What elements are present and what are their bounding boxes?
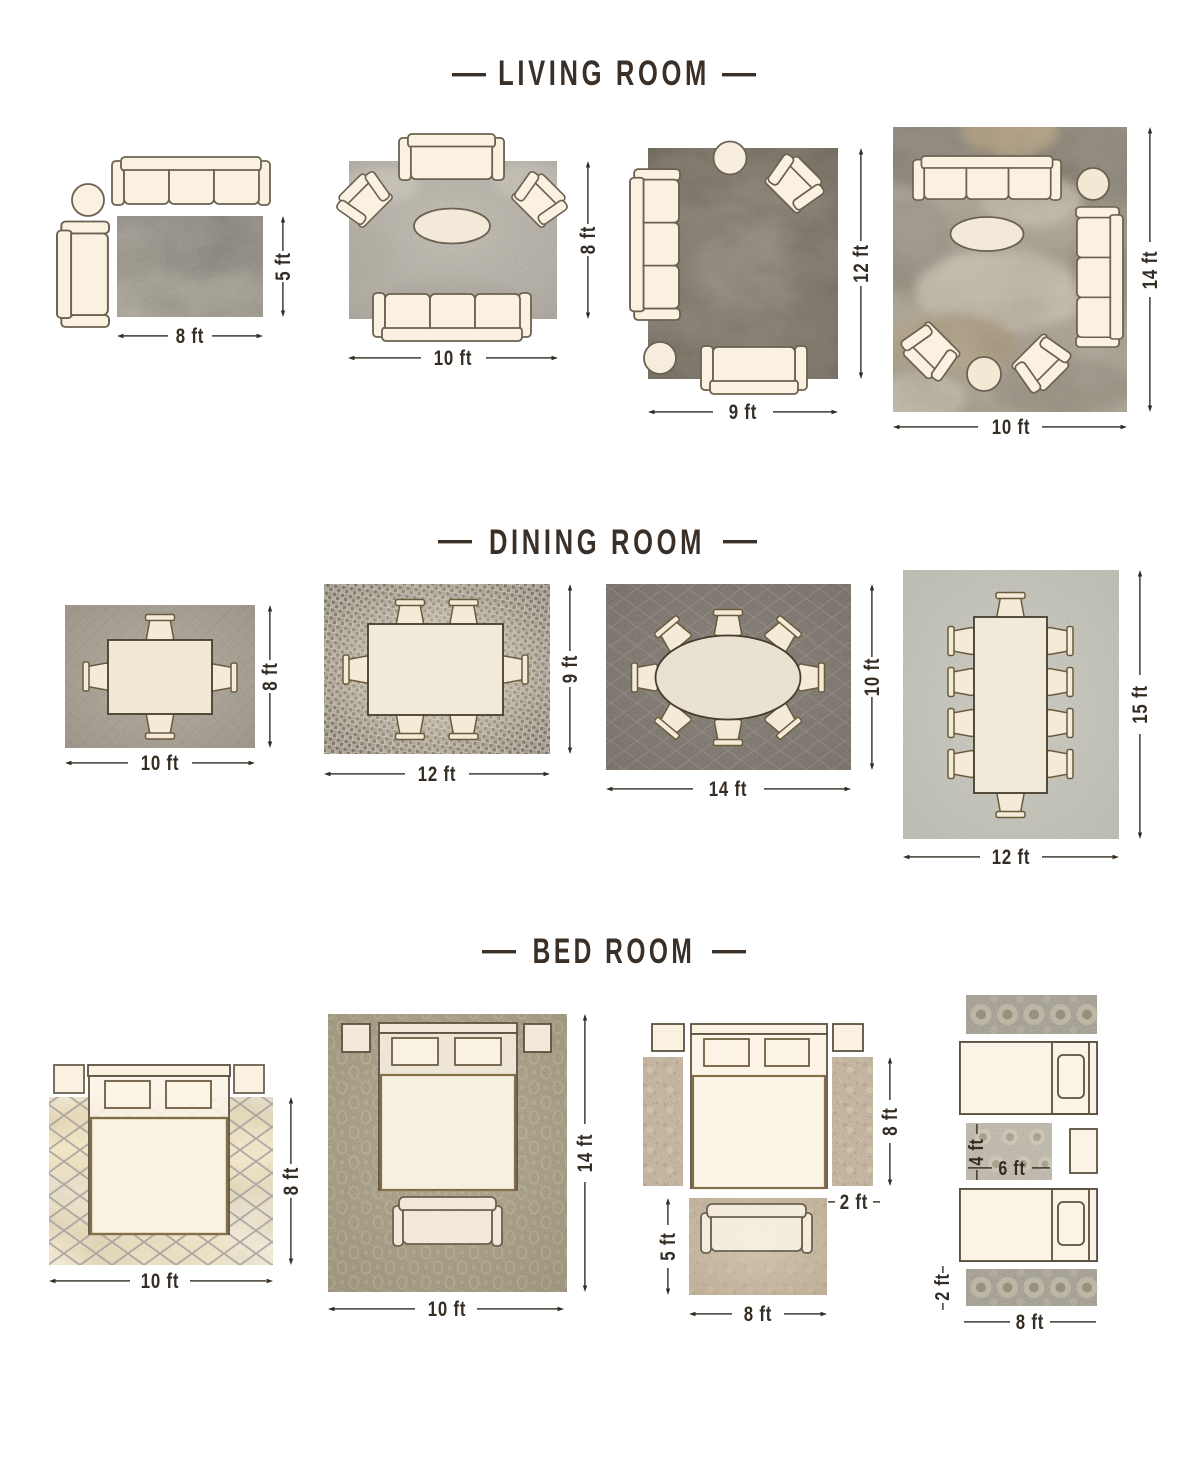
- svg-text:8 ft: 8 ft: [1016, 1311, 1044, 1334]
- svg-text:12 ft: 12 ft: [850, 244, 873, 283]
- svg-text:DINING ROOM: DINING ROOM: [489, 523, 705, 562]
- svg-text:10 ft: 10 ft: [992, 416, 1031, 439]
- svg-text:BED ROOM: BED ROOM: [533, 933, 696, 971]
- svg-text:8 ft: 8 ft: [259, 662, 282, 690]
- svg-text:5 ft: 5 ft: [657, 1232, 680, 1260]
- svg-text:8 ft: 8 ft: [176, 325, 204, 348]
- svg-text:10 ft: 10 ft: [434, 347, 473, 370]
- svg-text:5 ft: 5 ft: [272, 252, 295, 280]
- svg-text:12 ft: 12 ft: [418, 763, 457, 786]
- svg-text:2 ft: 2 ft: [931, 1273, 953, 1300]
- svg-text:8 ft: 8 ft: [744, 1303, 772, 1326]
- svg-text:15 ft: 15 ft: [1129, 685, 1152, 724]
- svg-text:10 ft: 10 ft: [428, 1298, 467, 1321]
- svg-text:10 ft: 10 ft: [861, 658, 884, 697]
- svg-text:8 ft: 8 ft: [879, 1107, 902, 1135]
- svg-text:10 ft: 10 ft: [141, 1270, 180, 1293]
- svg-text:2 ft: 2 ft: [840, 1191, 868, 1214]
- svg-text:LIVING ROOM: LIVING ROOM: [498, 54, 710, 93]
- svg-text:9 ft: 9 ft: [559, 655, 582, 683]
- svg-text:14 ft: 14 ft: [1139, 251, 1162, 290]
- svg-text:12 ft: 12 ft: [992, 846, 1031, 869]
- svg-text:8 ft: 8 ft: [280, 1167, 303, 1195]
- svg-text:6 ft: 6 ft: [998, 1157, 1025, 1179]
- svg-text:10 ft: 10 ft: [141, 752, 180, 775]
- svg-text:4 ft: 4 ft: [965, 1138, 987, 1165]
- svg-text:9 ft: 9 ft: [729, 401, 757, 424]
- svg-text:14 ft: 14 ft: [574, 1134, 597, 1173]
- svg-text:14 ft: 14 ft: [709, 778, 748, 801]
- svg-text:8 ft: 8 ft: [577, 226, 600, 254]
